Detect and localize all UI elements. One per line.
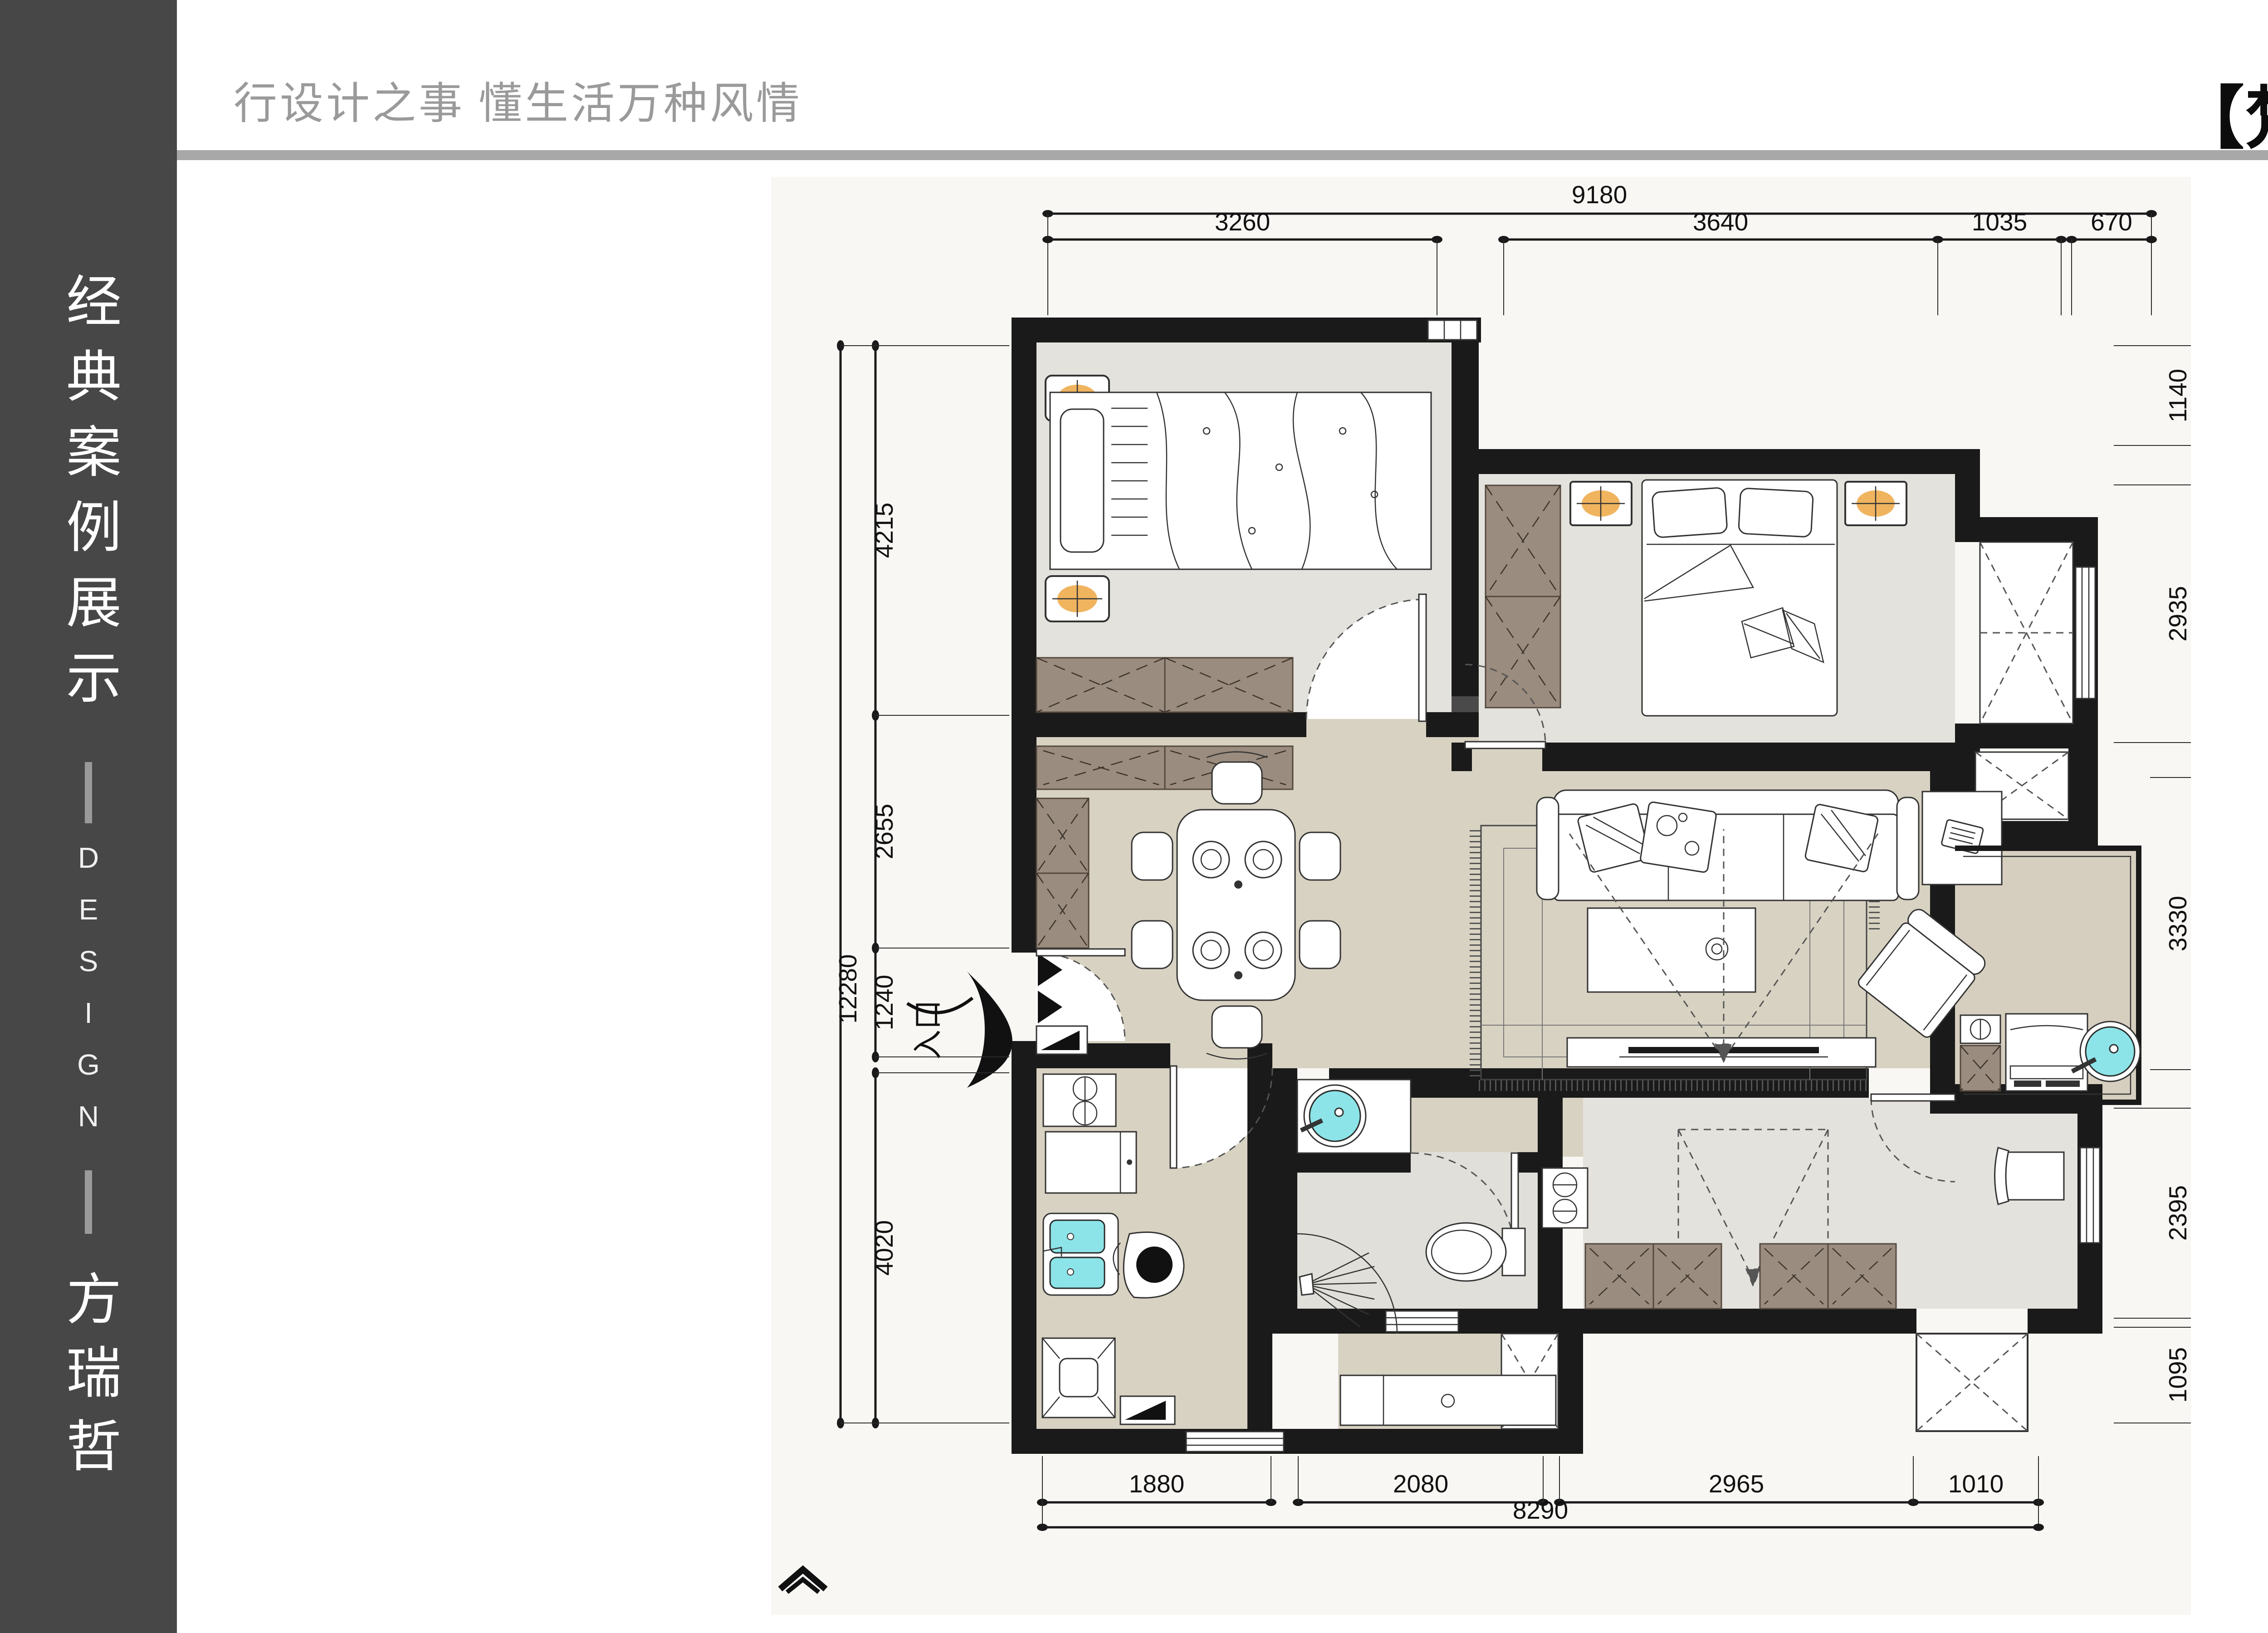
desk-chair <box>1995 1148 2064 1204</box>
header-tagline: 行设计之事 懂生活万种风情 <box>234 68 802 131</box>
wall-bath-left <box>1272 1068 1297 1334</box>
window-closet-right <box>2076 567 2095 699</box>
window-study-right <box>2080 1148 2100 1243</box>
sidebar-divider-dash-top <box>85 762 92 823</box>
dim-label: 4215 <box>870 503 898 558</box>
side-table <box>1922 792 2002 885</box>
wardrobe-bedroom1 <box>1036 658 1293 712</box>
cooktop-hood <box>1042 1338 1115 1418</box>
entry-marker: 入口 <box>907 972 1012 1088</box>
bay-window-study <box>1916 1334 2028 1431</box>
window-bedroom1-top <box>1428 320 1477 340</box>
wall-step-bottom <box>1558 1334 1583 1454</box>
dim-label: 670 <box>2091 208 2132 236</box>
valve-box <box>1960 1015 2000 1043</box>
pillow <box>1061 409 1104 552</box>
kitchen-sink <box>1043 1213 1118 1295</box>
sidebar: 经典案例展示 DESIGN 方瑞哲 <box>0 0 177 1633</box>
sofa-armrest <box>1537 797 1559 900</box>
door-leaf <box>1170 1066 1177 1168</box>
wall-shaft-right <box>2068 748 2098 823</box>
dim-label: 9180 <box>1572 181 1627 209</box>
wall-bath-niche-bottom <box>1297 1152 1411 1173</box>
bottom-balcony <box>1340 1375 1556 1425</box>
header-brand-title: 【梵高|先生】 <box>2176 64 2268 162</box>
outlet-box <box>1542 1168 1588 1228</box>
door-leaf <box>1465 742 1545 748</box>
header-divider <box>177 150 2268 160</box>
floor-plan: 入口 <box>771 177 2191 1615</box>
door-leaf <box>1036 949 1125 956</box>
sidebar-vertical-title: 经典案例展示 <box>49 272 129 724</box>
dim-label: 2935 <box>2164 586 2191 641</box>
closet-master <box>1980 542 2073 724</box>
coffee-table <box>1588 908 1755 992</box>
sidebar-author-name: 方瑞哲 <box>49 1270 129 1491</box>
balcony-counter <box>1340 1375 1556 1425</box>
window-kitchen-bottom <box>1186 1432 1284 1452</box>
dim-label: 2965 <box>1709 1470 1764 1498</box>
dim-label: 1240 <box>870 975 898 1030</box>
shower-head <box>1300 1274 1314 1295</box>
dim-label: 1010 <box>1948 1470 2004 1498</box>
ceiling-lamp-icon <box>1046 576 1109 621</box>
sofa-armrest <box>1897 797 1919 900</box>
dim-label: 8290 <box>1513 1496 1568 1524</box>
floor-plan-area: 入口 <box>771 177 2191 1615</box>
wall-bedroom1-bottom <box>1036 712 1306 737</box>
dim-label: 1035 <box>1972 208 2027 236</box>
wardrobe-master <box>1486 485 1560 708</box>
dimension-bottom: 1880 2080 2965 1010 8290 <box>1037 1456 2044 1531</box>
wall-left-upper <box>1012 318 1036 953</box>
dim-label: 2080 <box>1393 1470 1448 1498</box>
washing-machine <box>2006 1014 2087 1091</box>
entry-arrow-icon <box>967 972 1012 1088</box>
wall-bottom <box>1012 1429 1583 1454</box>
tall-cabinet <box>1036 798 1089 948</box>
door-leaf <box>1419 594 1426 721</box>
dim-label: 1880 <box>1129 1470 1184 1498</box>
double-bed <box>1642 480 1837 716</box>
ceiling-lamp-icon <box>1570 482 1632 525</box>
dimension-left: 4215 2655 1240 4020 12280 <box>834 340 1009 1428</box>
wall-top-bedroom1 <box>1012 318 1481 342</box>
dimension-top: 9180 3260 3640 1035 670 <box>1042 181 2157 315</box>
dim-label: 12280 <box>834 954 862 1024</box>
wall-master-top <box>1452 449 1980 474</box>
ceiling-lamp-icon <box>1845 482 1906 525</box>
gas-meter-box <box>1043 1074 1116 1126</box>
dim-label: 1095 <box>2164 1347 2191 1403</box>
sidebar-divider-dash-bottom <box>85 1170 92 1234</box>
dim-label: 1140 <box>2164 369 2191 422</box>
fridge <box>1046 1132 1136 1193</box>
basin-niche <box>1297 1080 1411 1153</box>
dim-label: 2395 <box>2164 1185 2191 1241</box>
wall-column-stub <box>1452 696 1479 714</box>
up-chevron-icon <box>773 1564 832 1596</box>
dim-label: 4020 <box>870 1220 898 1276</box>
door-leaf <box>1871 1094 1955 1101</box>
toilet <box>1426 1223 1525 1281</box>
sofa <box>1537 790 1919 900</box>
dim-label: 3640 <box>1693 208 1748 236</box>
corner-box <box>1120 1396 1175 1424</box>
dim-label: 3260 <box>1215 208 1270 236</box>
dim-label: 3330 <box>2164 896 2191 951</box>
dim-label: 2655 <box>870 804 898 859</box>
wall-bedroom1-bottom-stub <box>1426 712 1479 737</box>
wall-left-lower <box>1012 1041 1036 1454</box>
sidebar-design-label: DESIGN <box>72 841 105 1152</box>
wall-column-center <box>1452 318 1479 696</box>
wall-kitchen-right <box>1247 1043 1272 1429</box>
wall-study-bottom <box>1558 1309 1916 1334</box>
single-bed <box>1050 392 1431 569</box>
wall-master-bottom <box>1542 743 1980 771</box>
